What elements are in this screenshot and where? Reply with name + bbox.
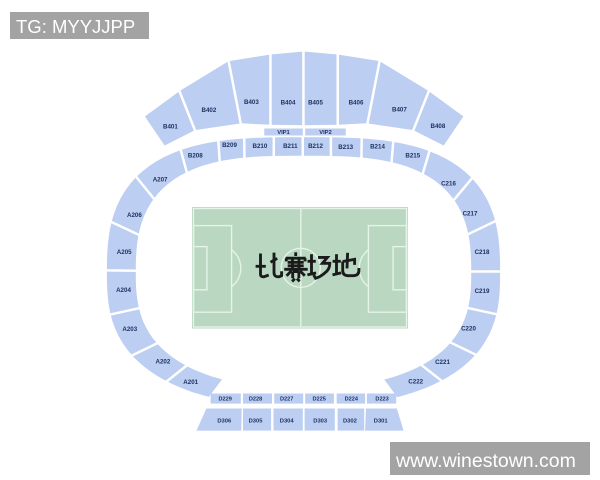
svg-text:B408: B408 [431,123,446,130]
svg-text:B212: B212 [308,143,323,150]
svg-text:A205: A205 [117,249,132,256]
svg-text:B208: B208 [188,153,203,160]
svg-text:D302: D302 [343,418,357,424]
svg-text:B215: B215 [405,153,420,160]
svg-text:www.winestown.com: www.winestown.com [395,450,576,472]
svg-text:C216: C216 [441,180,456,187]
svg-text:B405: B405 [308,99,323,106]
svg-text:B403: B403 [244,99,259,106]
svg-text:D227: D227 [280,397,293,403]
svg-text:VIP1: VIP1 [277,130,290,136]
svg-text:D301: D301 [374,418,389,424]
svg-text:C218: C218 [475,249,490,256]
svg-text:B402: B402 [202,107,217,114]
svg-text:D228: D228 [249,397,262,403]
svg-text:B401: B401 [163,124,178,131]
svg-text:B404: B404 [281,99,296,106]
svg-text:B211: B211 [283,143,298,150]
svg-text:D229: D229 [219,397,232,403]
svg-text:C222: C222 [408,379,423,386]
svg-text:B210: B210 [253,143,268,150]
svg-text:B406: B406 [349,99,364,106]
svg-text:D305: D305 [249,418,264,424]
svg-text:A202: A202 [156,358,171,365]
svg-text:C217: C217 [463,211,478,218]
svg-text:A201: A201 [183,379,198,386]
svg-text:A206: A206 [127,212,142,219]
svg-text:D224: D224 [345,397,359,403]
svg-text:A204: A204 [116,287,131,294]
svg-text:C220: C220 [461,326,476,333]
svg-text:B209: B209 [222,142,237,149]
svg-text:B407: B407 [392,107,407,114]
svg-text:B214: B214 [370,144,385,151]
svg-text:TG: MYYJJPP: TG: MYYJJPP [16,16,135,37]
svg-text:D225: D225 [313,397,326,403]
svg-text:A203: A203 [122,326,137,333]
svg-text:D304: D304 [280,418,295,424]
svg-text:VIP2: VIP2 [319,130,332,136]
svg-text:D223: D223 [375,397,388,403]
svg-text:A207: A207 [153,177,168,184]
svg-text:C219: C219 [475,288,490,295]
svg-text:B213: B213 [338,144,353,151]
svg-text:D303: D303 [313,418,328,424]
svg-text:D306: D306 [217,418,232,424]
svg-text:C221: C221 [435,359,450,366]
